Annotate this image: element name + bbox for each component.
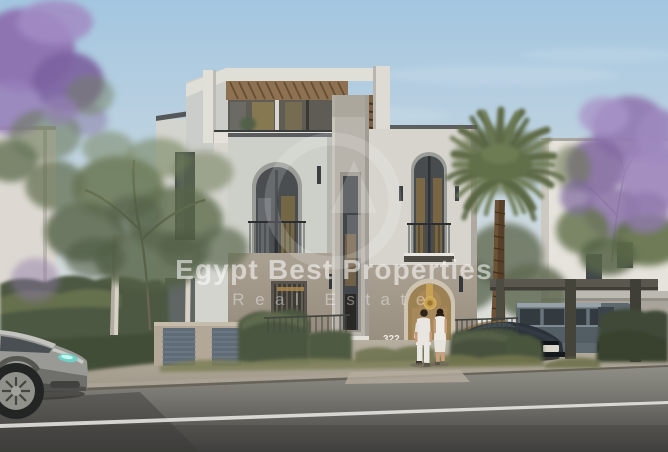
svg-text:Real Estate: Real Estate [232,290,435,309]
svg-text:Egypt Best Properties: Egypt Best Properties [175,254,493,285]
